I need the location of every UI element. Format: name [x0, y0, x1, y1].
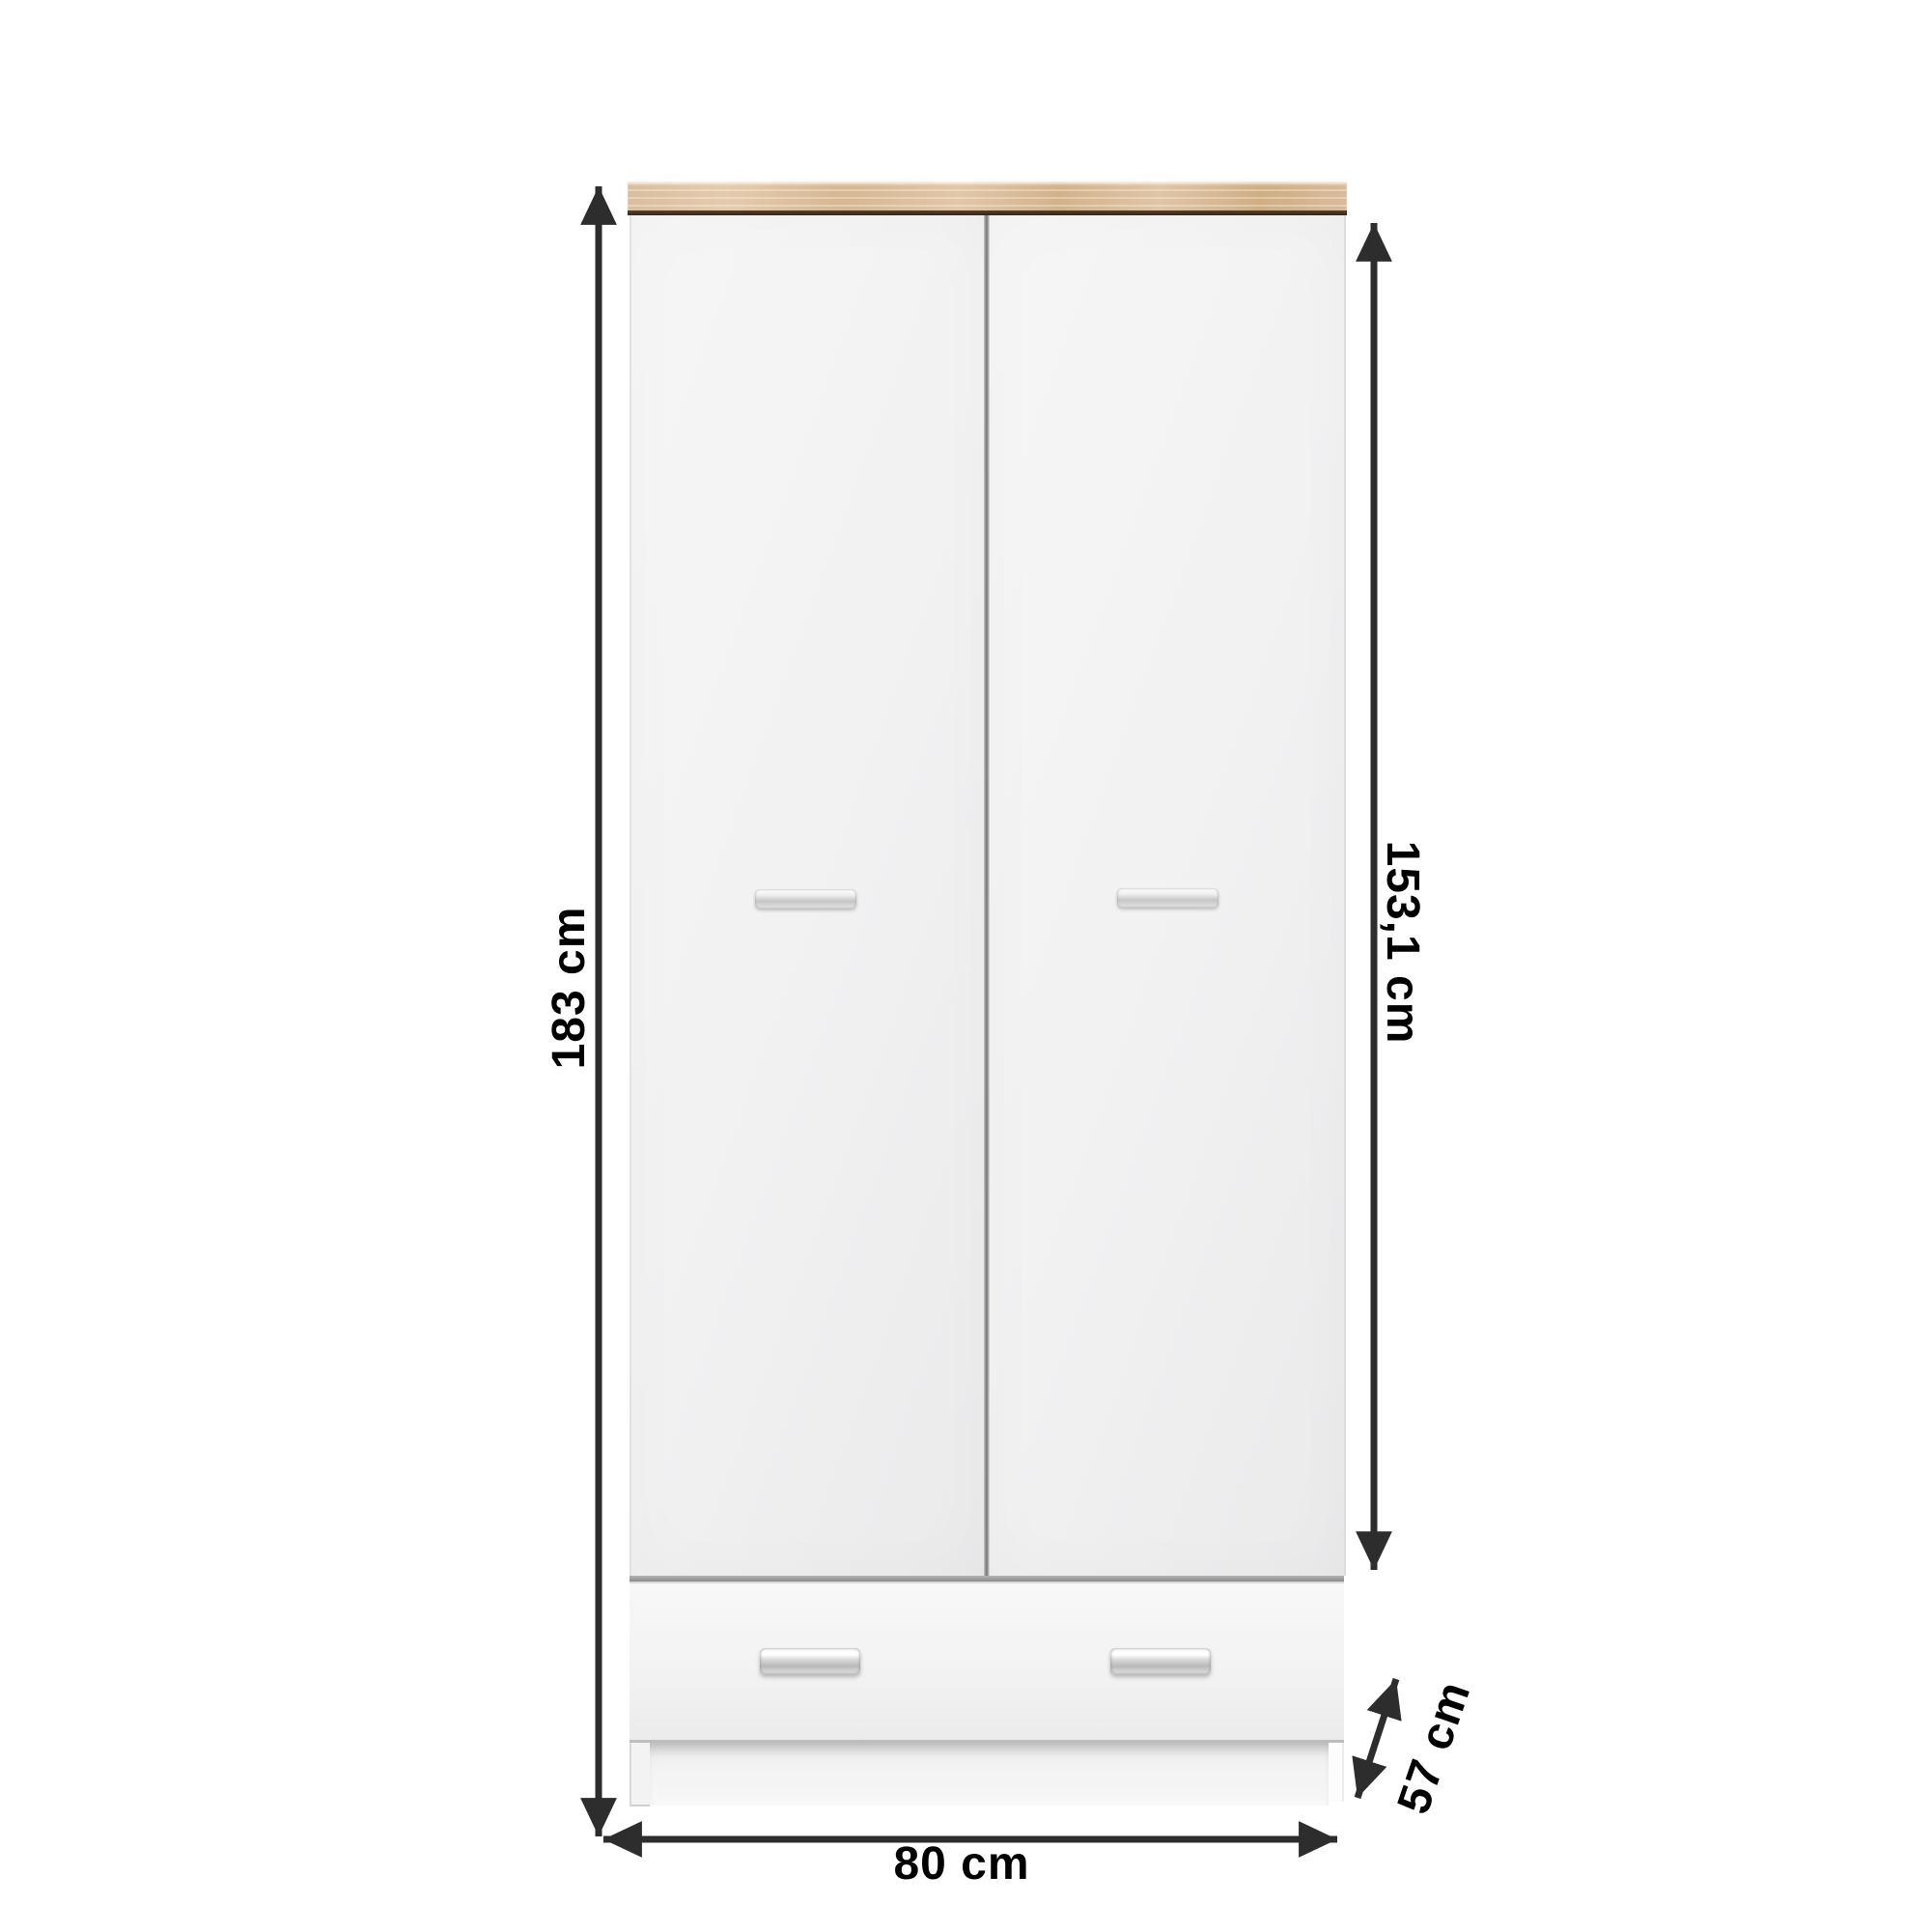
depth-arrow	[1358, 1679, 1396, 1798]
door-height-label: 153,1 cm	[1379, 841, 1425, 1045]
overall-height-label: 183 cm	[546, 907, 593, 1070]
dimension-arrows	[0, 0, 1932, 1932]
width-label: 80 cm	[893, 1841, 1029, 1888]
wardrobe-dimension-diagram: 183 cm 153,1 cm 80 cm 57 cm	[0, 0, 1932, 1932]
